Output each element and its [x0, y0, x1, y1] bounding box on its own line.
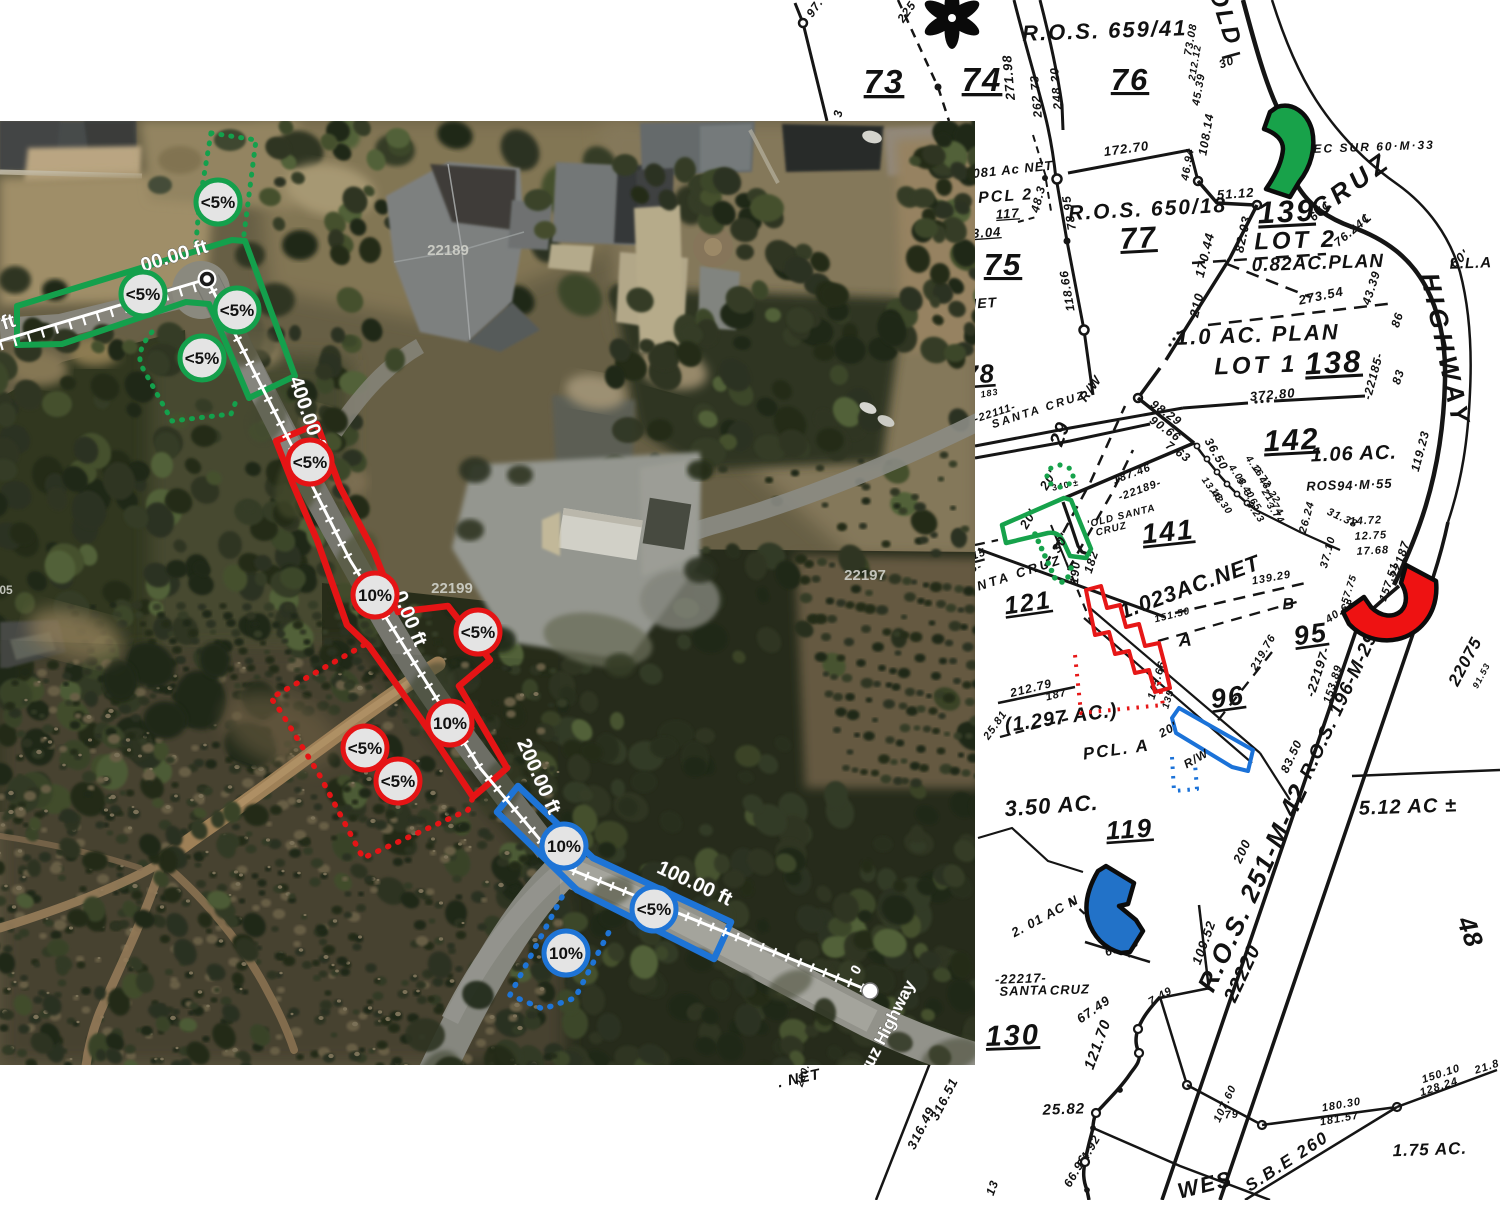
svg-text:141: 141 [1140, 513, 1196, 549]
svg-text:ROS: ROS [1306, 477, 1338, 494]
svg-text:10%: 10% [549, 944, 583, 963]
svg-text:22199: 22199 [431, 580, 473, 597]
svg-text:130: 130 [985, 1019, 1040, 1053]
svg-text:LOT 2: LOT 2 [1254, 226, 1338, 256]
svg-text:74: 74 [962, 61, 1003, 98]
svg-text:75: 75 [984, 247, 1022, 282]
svg-text:<5%: <5% [126, 285, 161, 304]
svg-text:10%: 10% [433, 714, 467, 733]
svg-text:17.68: 17.68 [1356, 544, 1389, 558]
svg-text:<5%: <5% [381, 772, 416, 791]
svg-text:79: 79 [1224, 1109, 1239, 1122]
svg-text:CRUZ: CRUZ [1050, 981, 1091, 997]
svg-text:1.75 AC.: 1.75 AC. [1392, 1139, 1467, 1161]
svg-text:<5%: <5% [201, 193, 236, 212]
svg-text:5.12 AC ±: 5.12 AC ± [1358, 794, 1457, 819]
svg-text:SANTA: SANTA [999, 982, 1048, 999]
svg-text:51.12: 51.12 [1216, 185, 1255, 203]
svg-text:25.82: 25.82 [1041, 1100, 1085, 1119]
svg-text:<5%: <5% [461, 623, 496, 642]
svg-text:117: 117 [995, 205, 1020, 222]
svg-text:95: 95 [1292, 617, 1330, 651]
svg-text:<5%: <5% [348, 739, 383, 758]
svg-text:119: 119 [1105, 812, 1154, 845]
svg-text:22197: 22197 [844, 567, 886, 584]
svg-text:12.75: 12.75 [1354, 529, 1387, 543]
svg-text:190: 190 [1067, 561, 1083, 585]
svg-text:96: 96 [1209, 680, 1247, 714]
svg-text:3.04: 3.04 [972, 224, 1002, 241]
svg-text:<5%: <5% [293, 453, 328, 472]
svg-text:10%: 10% [547, 837, 581, 856]
svg-text:05: 05 [0, 583, 13, 597]
svg-text:76: 76 [1111, 62, 1149, 97]
svg-text:<5%: <5% [637, 900, 672, 919]
svg-text:77: 77 [1119, 221, 1158, 256]
svg-text:<5%: <5% [185, 349, 220, 368]
svg-text:73: 73 [864, 63, 905, 100]
svg-text:1.06 AC.: 1.06 AC. [1310, 442, 1397, 467]
svg-text:LOT 1: LOT 1 [1214, 351, 1298, 381]
svg-text:22189: 22189 [427, 242, 469, 259]
svg-text:10%: 10% [358, 586, 392, 605]
svg-text:94·M·55: 94·M·55 [1337, 476, 1393, 494]
svg-text:<5%: <5% [220, 301, 255, 320]
svg-text:138: 138 [1304, 344, 1363, 382]
svg-text:14.72: 14.72 [1349, 514, 1382, 528]
